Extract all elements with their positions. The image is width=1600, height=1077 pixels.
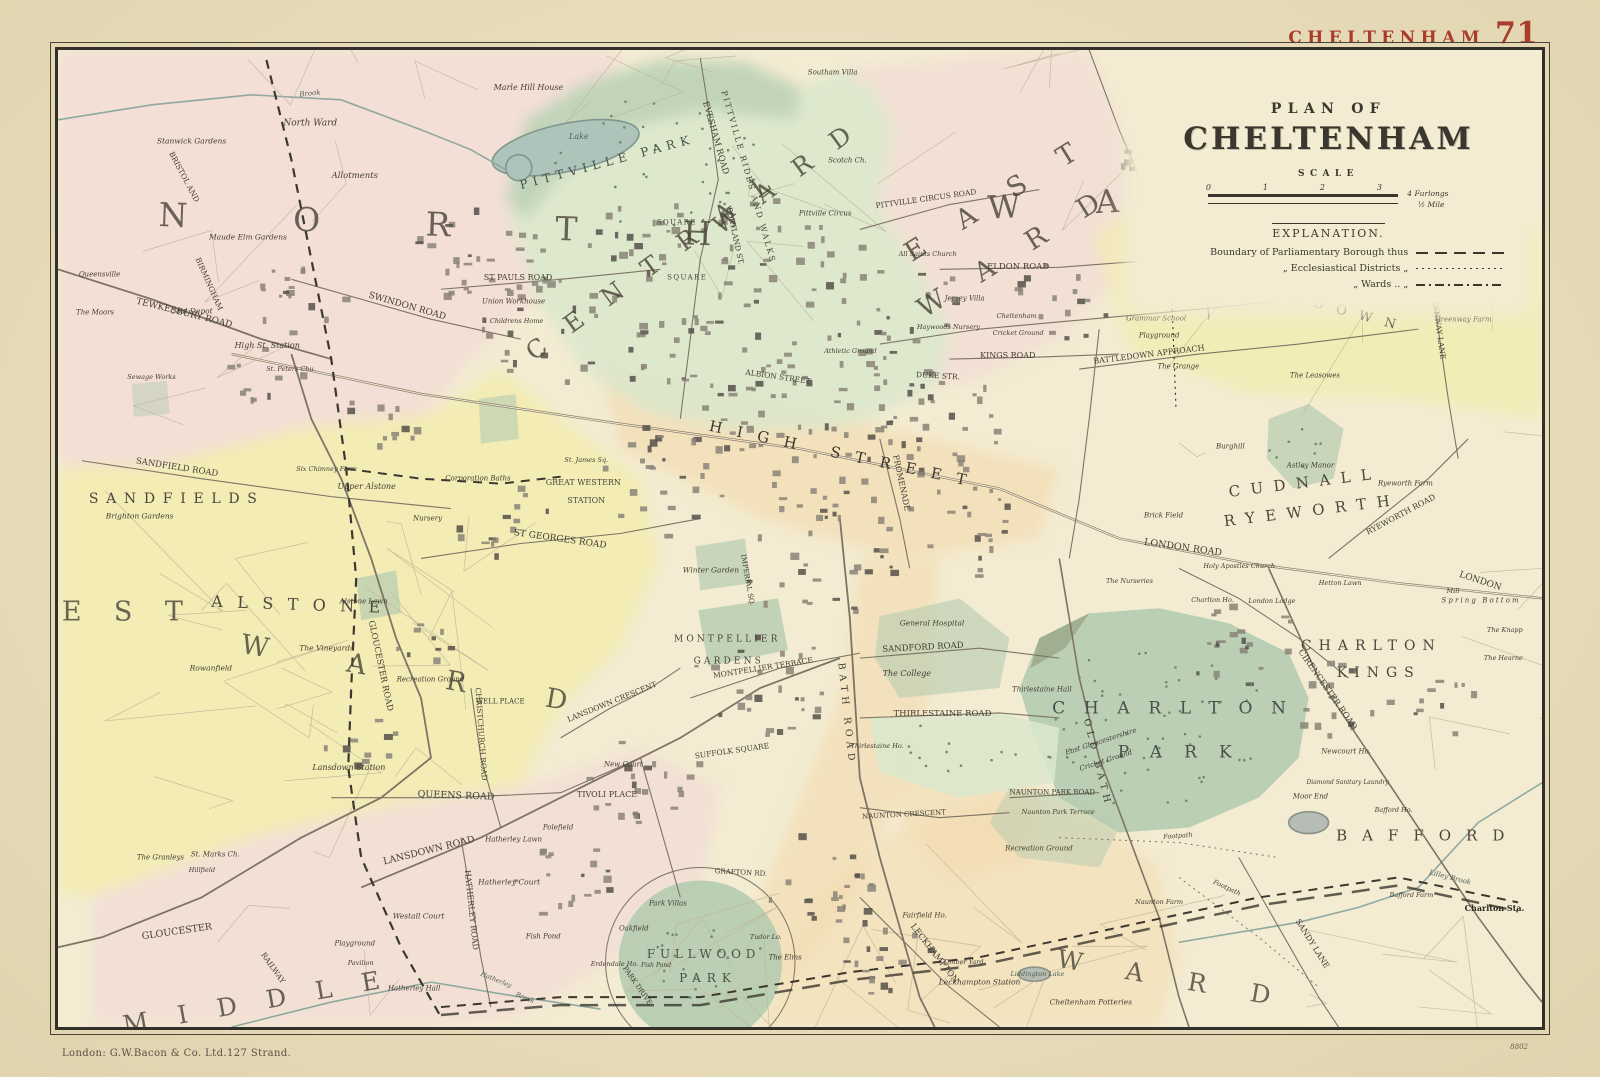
legend-line-dashdot [1416,284,1504,286]
map-label: The Nurseries [1106,577,1153,584]
map-label: Holy Apostles Church [1203,563,1275,570]
map-label: St. James Sq. [564,457,608,464]
map-label: Brook [515,991,536,1004]
scale-tick: 0 [1206,183,1211,192]
map-title-block: PLAN OF CHELTENHAM SCALE 0123 4 Furlongs… [1139,91,1519,302]
map-label: Timber Yard [943,958,984,965]
map-frame-outer: NORTHWARDEASTWARDCENTRALWARDWESTWARDMIDD… [50,42,1550,1035]
map-label: SQUARE [657,219,697,226]
map-label: The College [883,670,931,678]
map-label: Corporation Baths [445,475,510,482]
scale-ticks: 0123 [1208,183,1398,192]
map-label: LONDON [1457,571,1501,593]
map-label: LECKHAMPTON [908,922,959,985]
scale-bar-line [1208,194,1398,197]
map-label: KINGS ROAD [980,352,1035,360]
map-label: PARK DRIVE [621,965,653,1006]
map-label: ST GEORGES ROAD [513,529,607,551]
map-label: Union Workhouse [482,299,545,306]
map-label: Pavilion [348,959,374,966]
map-label: Oakfield [619,926,649,933]
map-label: IMPERIAL SQ. [739,553,755,606]
map-label: CHARLTON [1301,639,1442,653]
map-label: WEST [58,598,215,625]
map-label: Cricket Ground [1078,749,1132,773]
map-label: Thirlestaine Hall [1012,686,1072,693]
map-label: Cheltenham [997,312,1037,319]
map-label: MONTPELLIER TERRACE [713,657,814,680]
map-label: NAUNTON CRESCENT [862,809,946,820]
map-label: Rowanfield [190,665,233,673]
map-label: GARDENS [694,657,764,666]
map-label: Moor End [1293,794,1328,801]
map-label: Lansdown Station [312,764,385,772]
map-label: The Hearne [1484,654,1523,661]
map-label: Sewage Works [127,374,175,381]
map-label: BATH ROAD [836,663,856,767]
map-label: Charlton Sta. [1465,904,1525,912]
map-label: The Knapp [1487,627,1523,634]
map-label: Fish Pond [641,963,671,969]
map-label: Stanwick Gardens [157,137,226,145]
map-label: Cricket Ground [993,330,1044,337]
map-label: WARD [1055,946,1317,1016]
map-label: HATHERLEY ROAD [462,869,478,950]
legend-row: Boundary of Parliamentary Borough thus [1153,247,1505,258]
map-label: Hetton Lawn [1319,580,1362,587]
map-label: SANDFIELD ROAD [135,457,218,478]
map-label: LANSDOWN ROAD [382,835,475,867]
map-label: Leckhampton Station [939,978,1021,986]
map-label: Marle Hill House [494,84,564,92]
map-label: EAST [900,117,1116,266]
map-label: GLOUCESTER ROAD [366,619,394,711]
map-label: Winter Garden [683,566,739,574]
map-label: Hatherley Court [478,879,540,887]
map-label: Footpath [1163,831,1193,840]
map-label: BATTLEDOWN APPROACH [1093,344,1205,366]
map-label: Coal Depot [170,307,212,315]
map-label: Cheltenham Potteries [1050,998,1132,1006]
plate-note: 8802 [1510,1043,1528,1051]
map-label: DUKE STR. [916,371,960,381]
map-canvas: NORTHWARDEASTWARDCENTRALWARDWESTWARDMIDD… [58,50,1542,1027]
map-label: General Hospital [900,620,965,628]
map-label: Athletic Ground [824,348,876,355]
map-label: Burghill [1216,443,1245,450]
map-label: Polefield [543,824,574,831]
map-label: The Granleys [137,854,184,861]
map-label: Fairfield Ho. [902,912,946,919]
map-label: RYEWORTH [1223,493,1401,530]
map-label: Fish Pond [526,934,561,941]
map-frame-inner: NORTHWARDEASTWARDCENTRALWARDWESTWARDMIDD… [55,47,1545,1030]
legend-line-dot [1416,268,1504,270]
map-label: Hatherley [479,971,512,989]
legend-line-dash [1416,252,1504,254]
scale-tick: 3 [1377,183,1382,192]
map-label: Maude Elm Gardens [209,233,287,241]
map-label: RAILWAY [260,952,287,986]
map-label: Spring Bottom [1442,598,1521,605]
map-label: East Gloucestershire [1065,727,1138,757]
map-label: SQUARE [667,274,707,281]
map-label: Naunton Farm [1135,899,1183,906]
map-label: PITTVILLE RIDES AND WALKS [720,90,777,264]
map-label: BRISTOL AND [168,151,201,204]
map-label: Naunton Park Terrace [1022,809,1095,816]
map-label: CHARLTON [1052,701,1305,718]
map-label: Grammar School [1126,315,1186,322]
map-label: Queensville [79,271,120,278]
map-label: Recreation Ground [397,677,465,684]
map-label: SANDY LANE [1294,918,1331,970]
map-label: LONDON ROAD [1143,538,1222,558]
legend-label: „ Wards .. „ [1153,279,1409,290]
map-label: The Moors [76,309,114,316]
imprint: London: G.W.Bacon & Co. Ltd.127 Strand. [62,1048,291,1059]
map-label: The Elms [769,954,802,961]
map-label: CIRENCESTER ROAD [1296,648,1358,731]
map-label: TEWKESBURY ROAD [135,297,233,330]
map-sheet: CHELTENHAM 71 [0,0,1600,1077]
map-label: PITTVILLE CIRCUS ROAD [875,189,977,211]
map-label: Playground [334,940,375,947]
map-label: CUDNALL [1227,466,1381,500]
map-label: Charlton Ho. [1191,597,1234,604]
map-label: GLOUCESTER [141,923,212,942]
map-label: NORTH [158,198,818,254]
map-label: Playground [1139,333,1180,340]
map-label: PITTVILLE PARK [518,133,695,191]
legend-label: Boundary of Parliamentary Borough thus [1153,247,1409,258]
map-label: The Grange [1158,363,1200,370]
map-label: MONTPELLIER [674,636,781,645]
map-label: North Ward [283,120,337,129]
map-label: High St. Station [235,342,300,350]
map-label: PROMENADE [891,454,911,511]
map-label: CENTRAL [521,155,796,364]
map-title: CHELTENHAM [1147,121,1511,157]
map-label: London Lodge [1248,598,1295,605]
map-label: HIGH STREET [707,419,981,491]
map-label: Hatherley Lawn [485,837,542,844]
map-label: Hillfield [189,866,215,873]
map-label: St. Peters Chu. [266,366,316,373]
map-label: TIVOLI PLACE [577,791,637,799]
map-label: SANDFIELDS [89,492,265,506]
scale-bar: 0123 4 Furlongs ½ Mile [1208,183,1448,213]
map-label: ST PAULS ROAD [484,274,553,282]
map-label: BIRMINGHAM [194,257,224,312]
map-label: Alstone Lawn [340,599,388,606]
legend-row: „ Wards .. „ [1153,279,1505,290]
map-label: RYEWORTH ROAD [1365,493,1437,536]
map-label: BAFFORD [1336,829,1519,844]
map-label: Southam Villa [808,70,858,77]
map-label: Six Chimney Farm [296,466,357,473]
map-label: Astley Manor [1287,463,1334,470]
map-label: Diamond Sanitary Laundry [1306,780,1388,786]
map-label: Bafford Ho. [1375,807,1413,814]
legend-label: „ Ecclesiastical Districts „ [1153,263,1409,274]
map-label: OLD BATH [1081,718,1112,808]
map-label: CHRISTCHURCH ROAD [474,687,488,780]
legend: Boundary of Parliamentary Borough thus„ … [1147,247,1511,290]
scale-tick: 1 [1263,183,1268,192]
map-label: WELL PLACE [476,698,525,705]
map-label: Childrens Home [490,317,544,324]
scale-label: SCALE [1147,169,1511,179]
map-label: STATION [567,497,605,505]
scale-furlongs-label: 4 Furlongs [1407,189,1448,198]
map-label: Westall Court [393,912,445,920]
map-label: SUFFOLK SQUARE [694,743,769,761]
map-label: Allotments [332,172,378,181]
legend-row: „ Ecclesiastical Districts „ [1153,263,1505,274]
map-label: GRAFTON RD. [714,868,767,878]
map-label: FULLWOOD [647,948,760,960]
map-label: SANDFORD ROAD [882,642,964,655]
map-label: EVESHAM ROAD [701,100,730,175]
map-label: Jersey Villa [945,296,985,303]
map-label: Mill [1447,588,1460,595]
map-label: Haywoods Nursery [917,324,980,331]
map-label: Lilley Brook [1428,870,1471,887]
map-label: All Saints Church [899,251,957,258]
map-label: Bafford Farm [1390,892,1434,899]
map-label: PORTLAND ST. [725,206,744,265]
map-label: Brook [299,89,321,98]
map-label: Ryeworth Farm [1378,480,1433,487]
map-label: Newcourt Ho. [1321,749,1371,756]
scale-tick: 2 [1320,183,1325,192]
map-label: St. Marks Ch. [191,852,240,859]
map-label: Thirlestaine Ho. [851,742,904,749]
map-label: MIDDLE [121,962,411,1027]
map-label: The Vineyards [299,644,354,652]
map-label: New Court [604,762,643,769]
map-label: NAUNTON PARK ROAD [1010,789,1096,796]
map-label: Erdendale Ho. [591,961,639,968]
map-label: GREAT WESTERN [546,479,621,487]
map-label: Greenway Farm [1435,316,1492,323]
scale-bar-line2 [1208,203,1398,204]
map-label: ALBION STREET [745,369,811,386]
map-label: Footpath [1213,879,1242,897]
explanation-title: EXPLANATION. [1272,223,1384,240]
map-label: Scotch Ch. [828,158,867,165]
map-label: The Leasowes [1290,373,1340,380]
map-label: SWINDON ROAD [367,292,446,323]
map-label: ALSTONE [211,594,395,616]
map-title-line1: PLAN OF [1147,101,1511,117]
map-label: QUEENS ROAD [417,790,494,802]
map-label: PARK [679,972,737,984]
map-label: WARD [708,106,878,239]
map-label: Park Villas [649,900,687,907]
map-label: Tudor Lo. [750,934,782,941]
map-label: Lake [569,133,589,141]
map-label: LANSDOWN CRESCENT [566,680,658,723]
map-label: WARD [912,168,1138,323]
map-label: PARK [1118,745,1254,762]
map-label: ELDON ROAD [987,263,1049,272]
map-label: Upper Alstone [337,483,395,491]
map-label: THIRLESTAINE ROAD [894,710,992,719]
map-label: WARD [239,631,649,729]
map-label: Brighton Gardens [106,512,174,520]
scale-mile-label: ½ Mile [1418,200,1445,209]
map-label: Brick Field [1144,513,1183,520]
map-label: Recreation Ground [1005,846,1073,853]
map-label: Nursery [413,515,442,522]
map-label: Hatherley Hall [388,985,440,992]
map-label: Pittville Circus [799,211,852,218]
map-label: Liddington Lake [1010,971,1064,978]
map-label: KINGS [1337,666,1421,680]
